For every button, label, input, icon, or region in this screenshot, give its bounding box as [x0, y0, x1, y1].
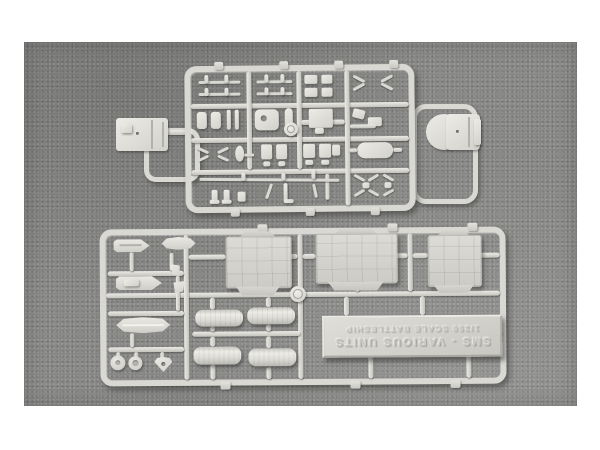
- winch-part: [211, 112, 221, 129]
- runner-segment: [108, 311, 184, 317]
- small-part: [384, 182, 391, 188]
- gate-tab: [371, 207, 380, 215]
- box-part: [304, 75, 317, 84]
- mold-gate: [284, 122, 298, 136]
- box-part: [321, 75, 332, 84]
- runner-segment: [266, 297, 271, 307]
- runner-segment: [210, 337, 215, 347]
- stem-part: [244, 153, 254, 156]
- block-part: [319, 144, 331, 158]
- foot-part: [284, 199, 294, 203]
- railing-part: [256, 80, 292, 83]
- block-part: [276, 144, 287, 159]
- part-hole: [261, 115, 267, 121]
- runner-segment: [349, 148, 357, 152]
- runner-segment: [407, 233, 412, 291]
- mold-gate: [290, 286, 306, 302]
- gate-tab: [214, 62, 223, 70]
- small-part: [362, 182, 369, 188]
- runner-segment: [130, 333, 134, 347]
- nameplate-line1: SMS - VARIOUS UNITS: [334, 335, 491, 348]
- railing-part: [257, 92, 293, 95]
- panel-line: [468, 117, 470, 147]
- small-part: [281, 173, 285, 180]
- superstructure-part-left-detail: [121, 124, 132, 133]
- block-part: [303, 144, 315, 158]
- runner-segment: [303, 254, 316, 259]
- foot-part: [263, 161, 270, 166]
- photo: SMS - VARIOUS UNITS 1/350 SCALE BATTLESH…: [24, 42, 577, 406]
- small-part: [204, 88, 208, 96]
- runner-segment: [266, 336, 271, 348]
- runner-segment: [393, 148, 402, 152]
- runner-segment: [344, 297, 349, 316]
- runner-segment: [210, 298, 215, 310]
- gate-tab: [257, 224, 267, 232]
- funnel-part: [247, 307, 295, 324]
- deck-panel: [428, 235, 482, 287]
- nameplate: SMS - VARIOUS UNITS 1/350 SCALE BATTLESH…: [322, 315, 502, 358]
- part-hole: [161, 362, 165, 366]
- runner-segment: [210, 365, 215, 380]
- capsule-part: [357, 142, 393, 158]
- deck-flap: [434, 285, 474, 293]
- block-part: [332, 145, 340, 156]
- small-part: [204, 75, 208, 83]
- post-part: [235, 110, 239, 130]
- boat-cabin: [124, 279, 139, 286]
- foot-part: [321, 160, 329, 165]
- deck-flap: [328, 281, 384, 290]
- gate-tab: [467, 223, 477, 231]
- small-part: [224, 88, 228, 96]
- gate-tab: [334, 61, 343, 69]
- gate-tab: [306, 208, 315, 216]
- gate-tab: [279, 61, 288, 69]
- gate-tab: [231, 209, 240, 217]
- superstructure-part-left: [116, 118, 168, 151]
- photo-page: SMS - VARIOUS UNITS 1/350 SCALE BATTLESH…: [0, 0, 600, 450]
- small-part: [280, 74, 284, 82]
- block-part: [261, 144, 272, 159]
- funnel-part: [248, 348, 296, 366]
- hull-keel-line: [122, 324, 164, 326]
- sprue-bottom: SMS - VARIOUS UNITS 1/350 SCALE BATTLESH…: [99, 227, 506, 387]
- small-part: [224, 75, 228, 83]
- small-part: [241, 173, 245, 181]
- runner-segment: [108, 347, 184, 353]
- runner-segment: [325, 174, 329, 200]
- box-part: [321, 88, 332, 97]
- small-part: [264, 74, 268, 82]
- gate-tab: [387, 223, 397, 231]
- runner-segment: [350, 124, 376, 128]
- funnel-part: [195, 309, 243, 326]
- post-part: [227, 110, 231, 130]
- foot-part: [278, 161, 285, 166]
- boat-part: [162, 237, 196, 250]
- gate-tab: [221, 382, 231, 390]
- runner-segment: [413, 253, 428, 258]
- boat-detail-line: [120, 244, 142, 246]
- runner-segment: [130, 252, 134, 271]
- runner-segment: [420, 296, 425, 315]
- small-part: [315, 128, 324, 134]
- runner-segment: [266, 367, 271, 379]
- runner-segment: [266, 324, 271, 331]
- propeller-part: [110, 355, 125, 370]
- runner-segment: [192, 331, 300, 337]
- runner-segment: [480, 253, 500, 258]
- deck-panel: [226, 236, 292, 288]
- block-part: [238, 192, 246, 202]
- part-hole: [136, 132, 139, 135]
- box-part: [304, 88, 317, 97]
- winch-part: [197, 112, 207, 129]
- panel-line: [151, 120, 153, 149]
- funnel-part: [193, 346, 241, 364]
- foot-part: [210, 200, 220, 204]
- gate-tab: [451, 380, 461, 388]
- gate-tab: [351, 381, 361, 389]
- turret-part-right-cap: [474, 119, 481, 145]
- runner-segment: [189, 255, 226, 260]
- panel-line: [162, 122, 164, 147]
- small-part: [280, 87, 284, 95]
- bracket-part: [255, 109, 279, 130]
- propeller-part: [128, 356, 142, 370]
- foot-part: [222, 200, 232, 204]
- small-part: [311, 169, 315, 179]
- foot-part: [305, 160, 313, 165]
- part-hole: [456, 130, 459, 133]
- disc-part: [235, 146, 244, 162]
- runner-segment: [210, 327, 215, 332]
- runner-segment: [176, 276, 180, 311]
- deck-panel: [315, 233, 397, 284]
- sprue-top: [184, 64, 416, 213]
- nameplate-line2: 1/350 SCALE BATTLESHIP: [345, 324, 479, 334]
- small-part: [264, 87, 268, 95]
- mount-part: [309, 109, 333, 128]
- nameplate-text: SMS - VARIOUS UNITS 1/350 SCALE BATTLESH…: [324, 317, 500, 356]
- deck-flap: [236, 286, 280, 295]
- gate-tab: [389, 60, 398, 68]
